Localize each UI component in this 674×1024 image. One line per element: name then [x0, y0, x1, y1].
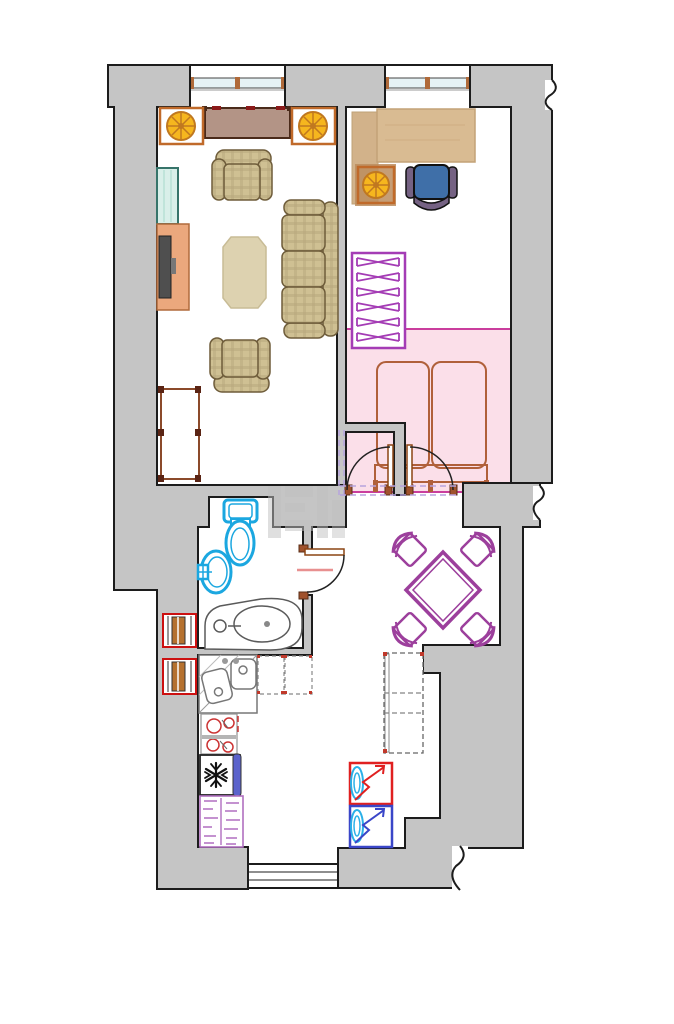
dining-table: [406, 552, 480, 628]
stove: [201, 714, 238, 754]
floor-plan-stage: [0, 0, 674, 1024]
wall-break-right-mid: [533, 486, 548, 520]
armchair-bottom: [210, 338, 270, 392]
bathtub: [205, 598, 302, 650]
living-room: [157, 106, 338, 482]
tall-cabinet: [383, 652, 424, 753]
base-cabinet-2: [284, 655, 312, 694]
vent-box-1: [163, 614, 196, 647]
bedroom-zone: [346, 329, 511, 492]
dining-chair-nw: [388, 528, 427, 567]
desk: [377, 109, 475, 162]
bathroom-door: [297, 545, 344, 599]
desk-wheel-chair: [355, 164, 396, 206]
glass-cabinet: [157, 168, 178, 224]
rug: [223, 237, 266, 308]
vent-box-2: [163, 659, 196, 694]
dining-chair-ne: [460, 528, 499, 567]
base-cabinet-1: [257, 655, 284, 694]
wardrobe-hangers: [352, 253, 405, 348]
armchair-top: [212, 150, 272, 200]
sink: [198, 551, 231, 593]
dryer-machine: [350, 806, 392, 847]
kitchen-window: [248, 864, 338, 888]
wheel-chair-left: [160, 108, 203, 144]
office-chair: [406, 165, 457, 210]
bench-frame: [158, 386, 201, 482]
pantry-cabinet: [200, 796, 243, 847]
dining-chair-sw: [388, 612, 427, 651]
wall-break-bottom: [452, 846, 468, 890]
sofa: [282, 200, 338, 338]
wheel-chair-right: [292, 108, 335, 144]
toilet: [224, 500, 257, 565]
floor-plan-canvas: [0, 0, 674, 1024]
sideboard: [202, 106, 292, 138]
living-room-window: [189, 65, 286, 90]
office-room: [352, 109, 475, 348]
corner-sink-unit: [199, 655, 257, 713]
office-window: [384, 65, 471, 90]
tv-stand: [157, 224, 189, 310]
wall-break-top-right: [545, 80, 561, 110]
refrigerator: [200, 754, 241, 796]
washing-machine: [350, 763, 392, 804]
